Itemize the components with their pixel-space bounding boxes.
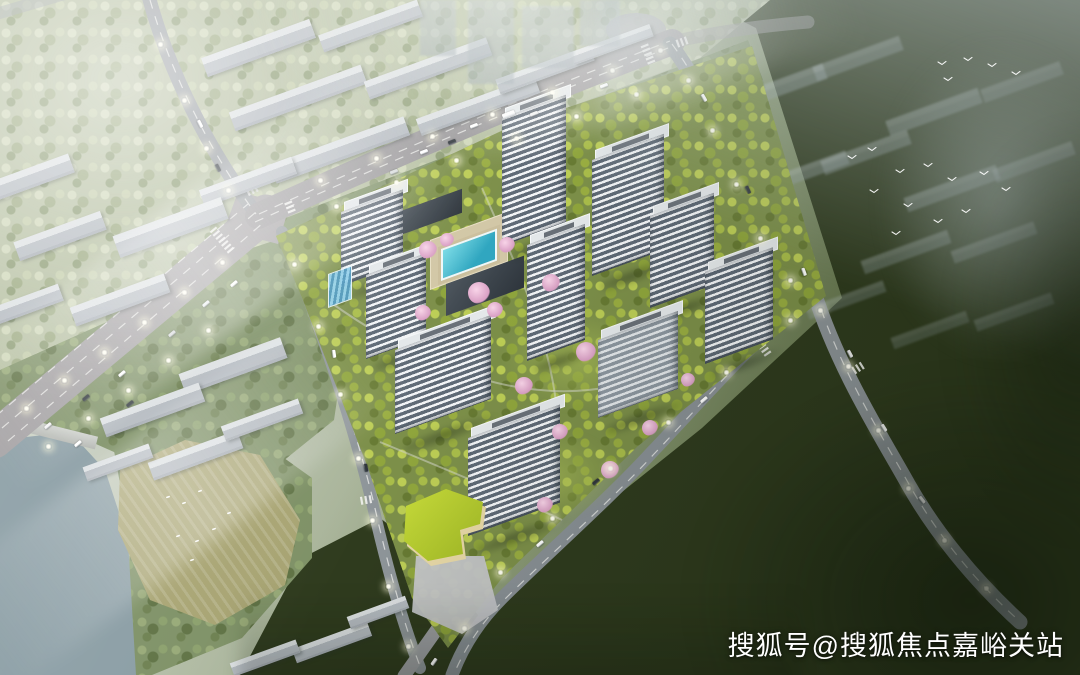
flying-bird xyxy=(948,177,956,180)
flying-bird xyxy=(848,155,856,158)
watermark: 搜狐号@搜狐焦点嘉峪关站 xyxy=(728,624,1064,663)
flying-bird xyxy=(938,61,946,64)
flying-bird xyxy=(988,63,996,66)
flying-bird xyxy=(934,219,942,222)
egret-bird xyxy=(182,502,186,505)
flying-bird xyxy=(868,147,876,150)
egret-bird xyxy=(166,496,170,499)
egret-bird xyxy=(227,512,231,515)
egret-bird xyxy=(190,559,194,562)
flying-bird xyxy=(892,231,900,234)
flying-bird xyxy=(904,203,912,206)
flying-bird xyxy=(944,77,952,80)
flying-bird xyxy=(962,209,970,212)
egret-bird xyxy=(212,528,216,531)
flying-bird xyxy=(1012,71,1020,74)
egret-bird xyxy=(195,540,199,543)
aerial-rendering-scene: 搜狐号@搜狐焦点嘉峪关站 xyxy=(0,0,1080,675)
egret-bird xyxy=(198,490,202,493)
birds-overlay xyxy=(0,0,1080,675)
flying-bird xyxy=(964,57,972,60)
flying-bird xyxy=(870,189,878,192)
flying-bird xyxy=(924,163,932,166)
flying-bird xyxy=(1002,187,1010,190)
egret-bird xyxy=(176,535,180,538)
flying-bird xyxy=(896,169,904,172)
flying-bird xyxy=(980,171,988,174)
